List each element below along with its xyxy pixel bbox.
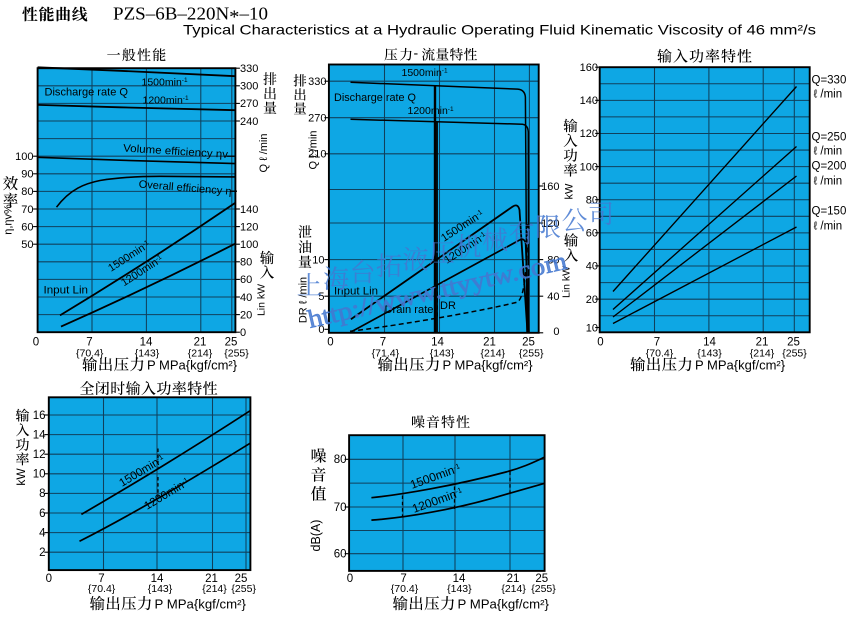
svg-text:{70.4}: {70.4} [76,348,104,360]
svg-text:1200min-1: 1200min-1 [408,105,454,117]
svg-text:1500min-1: 1500min-1 [142,76,188,88]
svg-text:16: 16 [33,410,46,422]
svg-text:-: - [413,45,418,61]
svg-text:P MPa{kgf/cm²}: P MPa{kgf/cm²} [458,597,550,612]
svg-text:120: 120 [240,221,258,233]
svg-text:270: 270 [308,113,326,125]
svg-text:1500min-1: 1500min-1 [402,67,448,79]
svg-text:160: 160 [541,181,559,193]
svg-text:{255}: {255} [231,583,256,595]
svg-text:Q=250: Q=250 [812,132,847,144]
svg-text:2: 2 [39,547,45,559]
svg-text:{255}: {255} [782,348,807,360]
svg-text:300: 300 [240,81,258,93]
svg-text:8: 8 [39,488,45,500]
svg-text:ℓ /min: ℓ /min [814,146,843,158]
svg-text:10: 10 [312,254,324,266]
svg-text:0: 0 [327,337,333,349]
svg-text:140: 140 [580,95,598,107]
svg-text:0: 0 [33,337,39,349]
svg-text:Discharge rate Q: Discharge rate Q [334,92,416,104]
svg-text:P MPa{kgf/cm²}: P MPa{kgf/cm²} [443,358,534,373]
svg-text:100: 100 [240,239,258,251]
svg-text:160: 160 [580,62,598,74]
svg-text:50: 50 [21,239,33,251]
svg-text:14: 14 [33,429,46,441]
svg-text:240: 240 [240,116,258,128]
svg-text:100: 100 [580,161,598,173]
svg-text:Lin kW: Lin kW [256,284,268,316]
svg-text:Q ℓ /min: Q ℓ /min [258,133,270,172]
svg-text:Q=200: Q=200 [812,161,847,173]
svg-text:0: 0 [240,327,246,339]
svg-text:60: 60 [334,549,347,561]
svg-text:1200min-1: 1200min-1 [143,94,189,106]
svg-text:ℓ /min: ℓ /min [814,176,843,188]
svg-text:{70.4}: {70.4} [391,583,419,595]
svg-text:{70.4}: {70.4} [646,348,674,360]
svg-text:Input Lin: Input Lin [44,285,89,297]
svg-text:40: 40 [547,291,559,303]
svg-text:{214}: {214} [202,583,227,595]
svg-text:P MPa{kgf/cm²}: P MPa{kgf/cm²} [695,358,786,373]
svg-text:0: 0 [347,573,353,585]
svg-text:70: 70 [334,502,347,514]
svg-text:Q=330: Q=330 [812,75,847,87]
svg-text:{70.4}: {70.4} [88,583,116,595]
svg-text:0: 0 [46,573,52,585]
svg-text:6: 6 [39,508,45,520]
svg-text:60: 60 [586,228,598,240]
svg-text:dB(A): dB(A) [309,520,323,552]
svg-text:{255}: {255} [531,583,556,595]
svg-text:Q ℓ /min: Q ℓ /min [308,130,320,169]
svg-text:90: 90 [21,169,33,181]
svg-text:80: 80 [586,195,598,207]
svg-text:{143}: {143} [447,583,472,595]
svg-text:ℓ /min: ℓ /min [814,89,843,101]
svg-text:10: 10 [33,469,46,481]
svg-text:70: 70 [21,204,33,216]
svg-text:80: 80 [240,257,252,269]
svg-text:0: 0 [553,326,559,338]
svg-text:330: 330 [240,63,258,75]
svg-text:20: 20 [240,309,252,321]
svg-text:0: 0 [597,337,603,349]
svg-text:P MPa{kgf/cm²}: P MPa{kgf/cm²} [147,358,238,373]
svg-text:20: 20 [586,294,598,306]
svg-text:270: 270 [240,98,258,110]
svg-text:kW: kW [564,183,576,200]
svg-text:{143}: {143} [148,583,173,595]
svg-text:kW: kW [14,468,28,486]
svg-text:40: 40 [240,292,252,304]
svg-text:80: 80 [21,186,33,198]
svg-text:60: 60 [21,221,33,233]
svg-text:Q=150: Q=150 [812,206,847,218]
svg-text:{214}: {214} [501,583,526,595]
svg-text:60: 60 [240,274,252,286]
svg-text:120: 120 [580,128,598,140]
svg-text:Typical Characteristics at a H: Typical Characteristics at a Hydraulic O… [183,23,816,38]
svg-text:80: 80 [334,454,347,466]
svg-text:40: 40 [586,261,598,273]
svg-text:P MPa{kgf/cm²}: P MPa{kgf/cm²} [155,597,247,612]
svg-text:{71.4}: {71.4} [372,348,400,360]
svg-text:330: 330 [308,76,326,88]
svg-text:12: 12 [33,449,46,461]
svg-text:100: 100 [15,151,33,163]
svg-text:Discharge rate Q: Discharge rate Q [45,87,129,99]
svg-text:140: 140 [240,204,258,216]
svg-text:η,ηv%: η,ηv% [3,204,15,235]
svg-text:10: 10 [586,322,598,334]
svg-text:ℓ /min: ℓ /min [814,221,843,233]
svg-text:4: 4 [39,527,46,539]
